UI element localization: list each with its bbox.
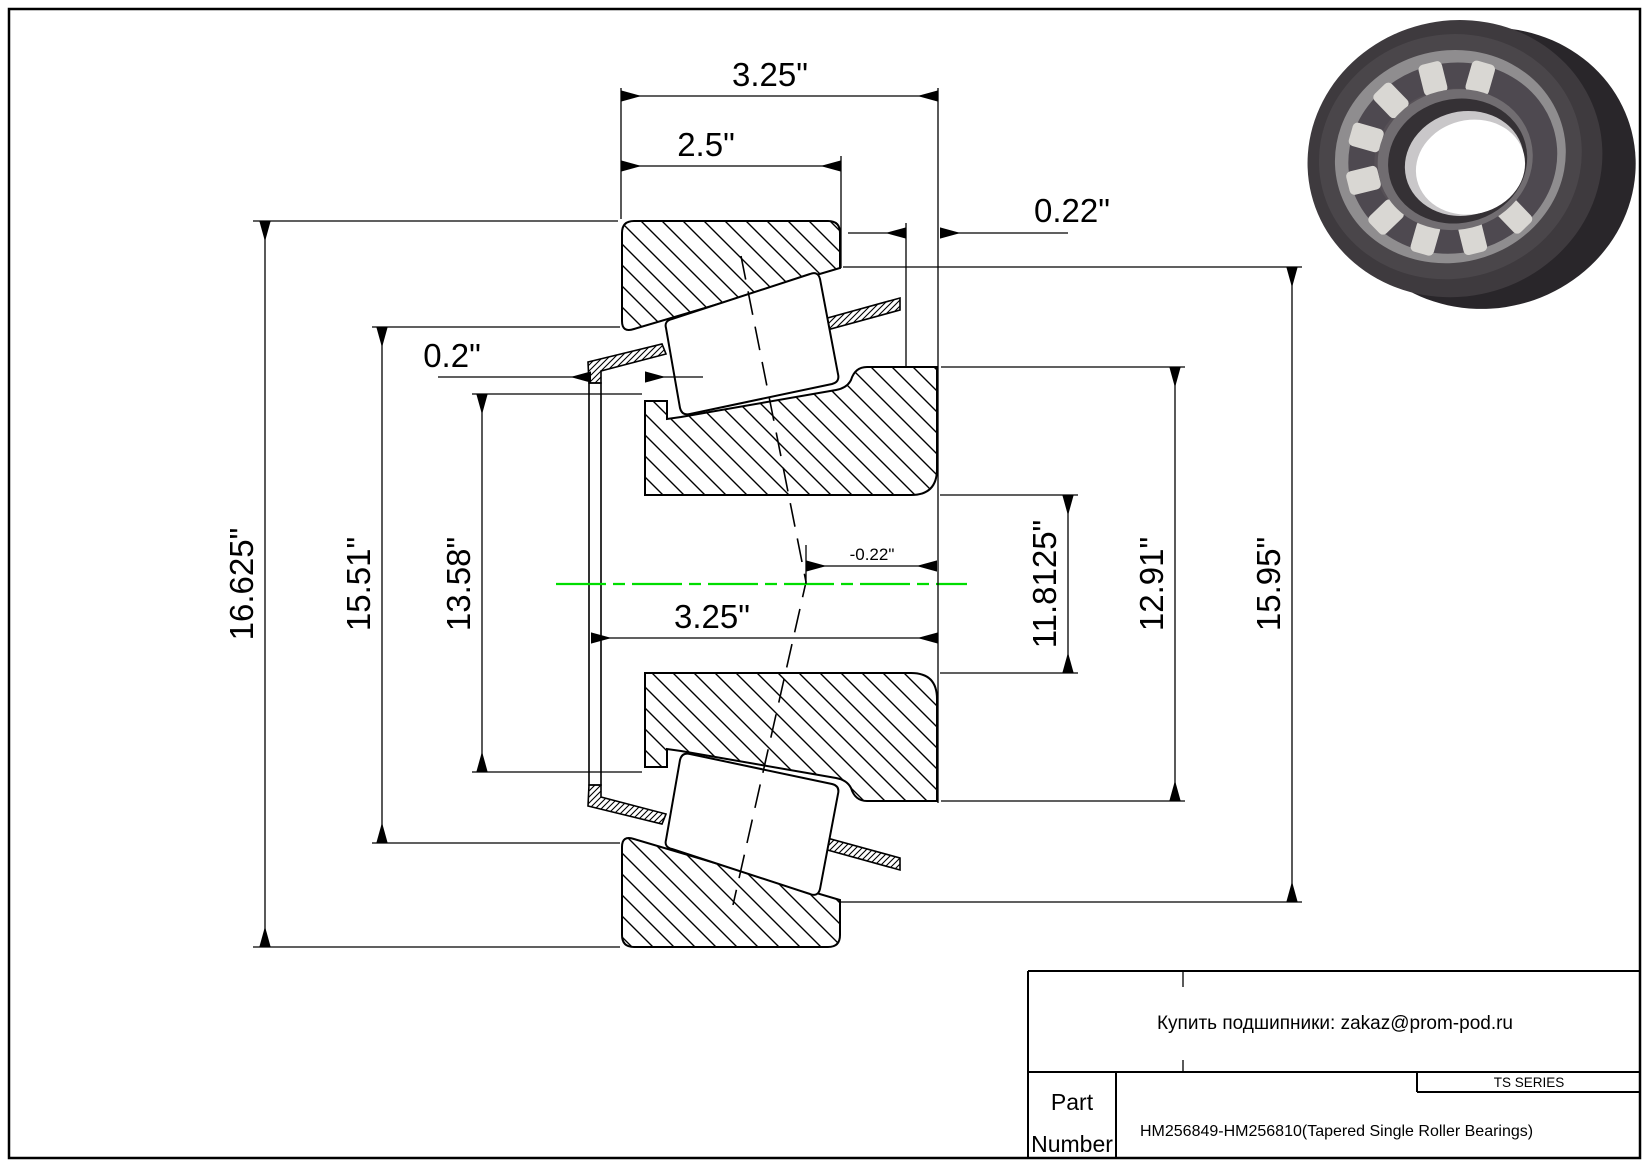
dim-label-flange-diameter: 15.51" — [340, 537, 377, 631]
title-block: Купить подшипники: zakaz@prom-pod.ru TS … — [1028, 971, 1641, 1158]
dim-label-stickout-left: 0.2" — [423, 337, 481, 374]
part-label-line2: Number — [1031, 1131, 1113, 1157]
dim-label-outer-diameter: 16.625" — [223, 528, 260, 641]
part-label-line1: Part — [1051, 1089, 1094, 1115]
dim-label-cup-width: 2.5" — [677, 126, 735, 163]
part-number-value: HM256849-HM256810(Tapered Single Roller … — [1140, 1123, 1533, 1140]
dim-label-overall-width-top: 3.25" — [732, 56, 808, 93]
dim-label-cone-width: 3.25" — [674, 598, 750, 635]
drawing-sheet: 3.25" 2.5" 0.22" 0.2" 16.625" 15.51" 13.… — [0, 0, 1649, 1167]
dim-label-effective-center: -0.22" — [850, 545, 895, 564]
series-badge: TS SERIES — [1494, 1075, 1565, 1090]
dim-label-cone-back-diameter: 12.91" — [1133, 537, 1170, 631]
flinger-lower — [588, 785, 666, 824]
engineering-drawing: 3.25" 2.5" 0.22" 0.2" 16.625" 15.51" 13.… — [0, 0, 1649, 1167]
vendor-contact: Купить подшипники: zakaz@prom-pod.ru — [1157, 1013, 1513, 1034]
bearing-photo — [1278, 0, 1649, 347]
dim-label-seal-diameter: 13.58" — [440, 537, 477, 631]
dim-label-bore-diameter: 11.8125" — [1026, 520, 1063, 649]
dim-label-stickout-right: 0.22" — [1034, 192, 1110, 229]
dim-label-cup-outer-diameter: 15.95" — [1250, 537, 1287, 631]
